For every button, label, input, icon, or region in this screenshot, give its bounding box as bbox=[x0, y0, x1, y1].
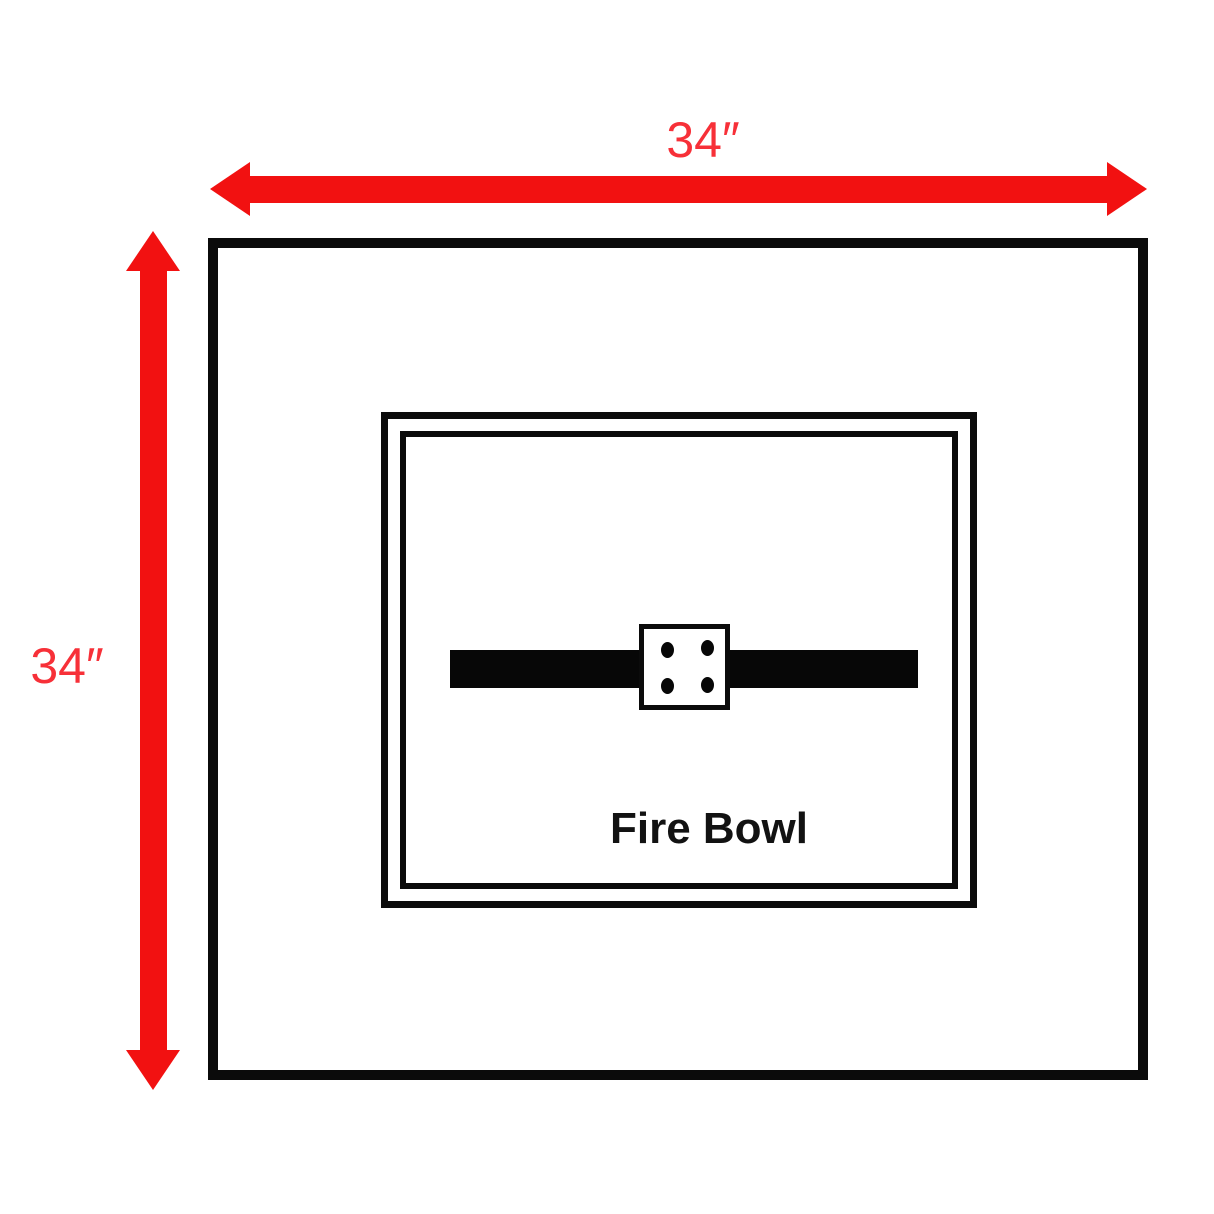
fire-bowl-label: Fire Bowl bbox=[509, 804, 909, 854]
burner-port-dot bbox=[661, 642, 674, 658]
height-dimension-label: 34″ bbox=[8, 640, 126, 692]
width-arrow-body bbox=[246, 176, 1111, 203]
width-dimension-label: 34″ bbox=[553, 114, 853, 166]
arrow-right-head-icon bbox=[1107, 162, 1147, 216]
arrow-up-head-icon bbox=[126, 231, 180, 271]
diagram-canvas: 34″ 34″ Fire Bowl bbox=[0, 0, 1214, 1214]
burner-port-dot bbox=[701, 640, 714, 656]
burner-port-dot bbox=[701, 677, 714, 693]
burner-hub bbox=[639, 624, 730, 710]
arrow-left-head-icon bbox=[210, 162, 250, 216]
burner-port-dot bbox=[661, 678, 674, 694]
arrow-down-head-icon bbox=[126, 1050, 180, 1090]
height-arrow-body bbox=[140, 267, 167, 1054]
